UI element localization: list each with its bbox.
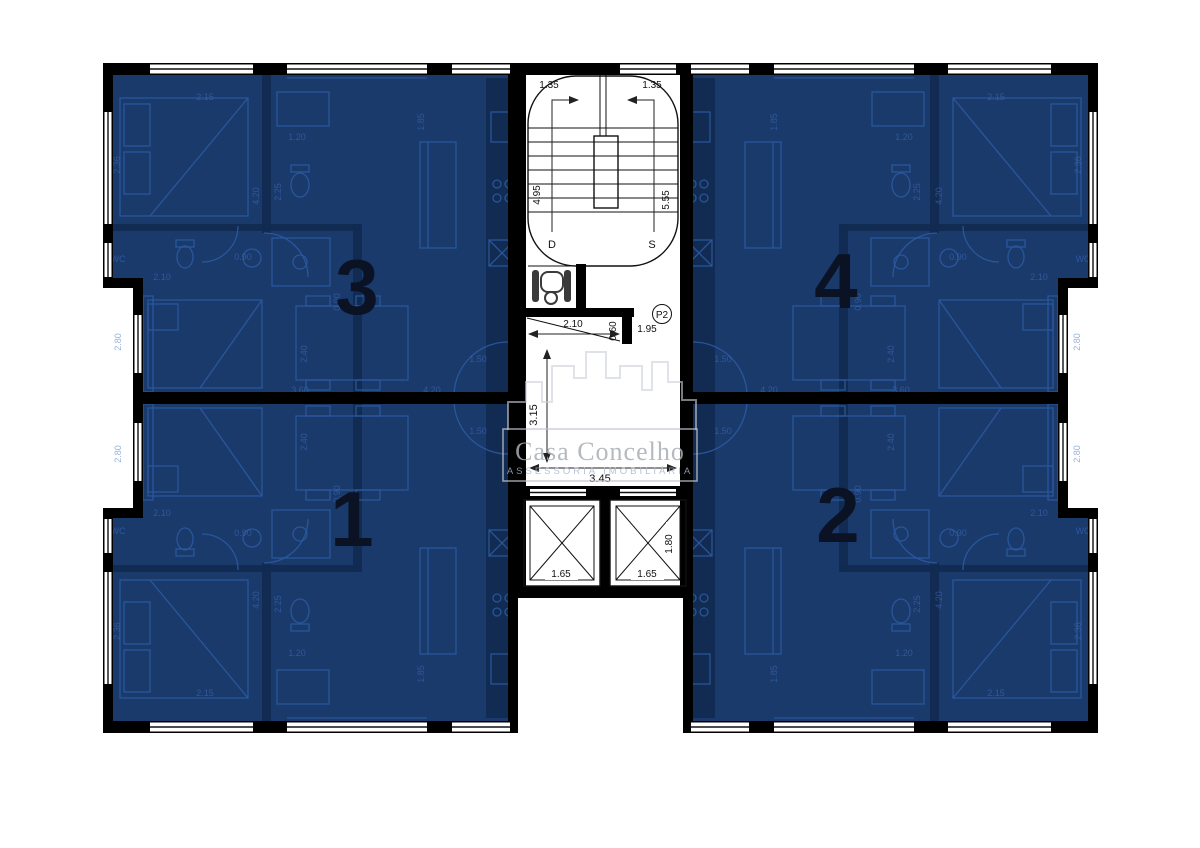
floor-plan-page: 2.152.361.202.254.200.902.10WC1.852.400.…	[0, 0, 1200, 848]
dim-elevator-left-width: 1.65	[551, 569, 571, 580]
unit-dimension-label: 1.50	[469, 426, 487, 436]
unit-dimension-label: 2.15	[196, 92, 214, 102]
watermark-title: Casa Concelho	[515, 437, 685, 466]
unit-dimension-label: 2.15	[987, 688, 1005, 698]
unit-dimension-label: 2.25	[273, 595, 283, 613]
unit-dimension-label: 1.20	[288, 132, 306, 142]
unit-dimension-label: 2.10	[153, 508, 171, 518]
unit-dimension-label: 2.10	[1030, 272, 1048, 282]
dim-stair-width-right: 1.35	[642, 80, 662, 91]
dim-stair-run-up: 5.55	[661, 190, 672, 210]
unit-dimension-label: 2.15	[196, 688, 214, 698]
unit-dimension-label: 2.15	[987, 92, 1005, 102]
unit-dimension-label: 2.10	[1030, 508, 1048, 518]
unit-dimension-label: 1.85	[769, 665, 779, 683]
unit-dimension-label: 0.90	[949, 252, 967, 262]
unit-dimension-label: 2.36	[112, 622, 122, 640]
unit-dimension-label: 4.20	[934, 591, 944, 609]
watermark-subtitle: ASSESSORIA IMOBILIÁRIA	[507, 466, 693, 477]
unit-dimension-label: 2.80	[113, 445, 123, 463]
unit-dimension-label: 2.80	[1072, 445, 1082, 463]
unit-dimension-label: 2.40	[299, 433, 309, 451]
apartment-unit-3	[103, 63, 518, 398]
dim-vestibule-depth: 0.60	[608, 321, 619, 341]
unit-dimension-label: 2.40	[886, 433, 896, 451]
dim-elevator-right-width: 1.65	[637, 569, 657, 580]
unit-number-3: 3	[335, 243, 378, 331]
dim-vestibule-door: 1.95	[637, 324, 657, 335]
dim-elevator-depth: 1.80	[664, 534, 675, 554]
dim-stair-width-left: 1.35	[539, 80, 559, 91]
unit-dimension-label: 0.90	[949, 528, 967, 538]
unit-dimension-label: 2.25	[273, 183, 283, 201]
unit-dimension-label: 2.40	[886, 345, 896, 363]
central-core: 1.35 1.35 4.95 5.55 D S 2.10 0.60 1.95	[516, 63, 690, 598]
stair-down-label: D	[548, 239, 556, 251]
unit-dimension-label: 2.25	[912, 595, 922, 613]
unit-dimension-label: 1.85	[416, 665, 426, 683]
dim-stair-run-down: 4.95	[532, 185, 543, 205]
unit-dimension-label: 1.50	[714, 426, 732, 436]
unit-dimension-label: 4.20	[251, 591, 261, 609]
unit-dimension-label: 1.20	[288, 648, 306, 658]
unit-dimension-label: 1.20	[895, 648, 913, 658]
unit-dimension-label: 2.40	[299, 345, 309, 363]
unit-dimension-label: 1.85	[769, 113, 779, 131]
stair-up-label: S	[648, 239, 655, 251]
unit-dimension-label: 2.80	[113, 333, 123, 351]
unit-dimension-label: 1.20	[895, 132, 913, 142]
unit-dimension-label: 2.80	[1072, 333, 1082, 351]
unit-dimension-label: 4.20	[251, 187, 261, 205]
dim-hall-depth: 3.15	[528, 404, 540, 425]
floor-plan-image: 2.152.361.202.254.200.902.10WC1.852.400.…	[0, 0, 1200, 848]
apartment-unit-1	[103, 398, 518, 733]
unit-dimension-label: 2.36	[1073, 622, 1083, 640]
unit-dimension-label: 2.25	[912, 183, 922, 201]
unit-dimension-label: 1.50	[469, 354, 487, 364]
dim-vestibule-width: 2.10	[563, 319, 583, 330]
unit-dimension-label: 2.10	[153, 272, 171, 282]
unit-dimension-label: 1.50	[714, 354, 732, 364]
unit-dimension-label: 2.36	[1073, 156, 1083, 174]
unit-dimension-label: 0.90	[234, 252, 252, 262]
unit-dimension-label: 4.20	[934, 187, 944, 205]
unit-number-4: 4	[814, 237, 857, 325]
unit-number-2: 2	[816, 471, 859, 559]
unit-dimension-label: 0.90	[234, 528, 252, 538]
svg-text:P2: P2	[656, 310, 669, 321]
unit-dimension-label: 1.85	[416, 113, 426, 131]
unit-dimension-label: 2.36	[112, 156, 122, 174]
unit-number-1: 1	[330, 475, 373, 563]
